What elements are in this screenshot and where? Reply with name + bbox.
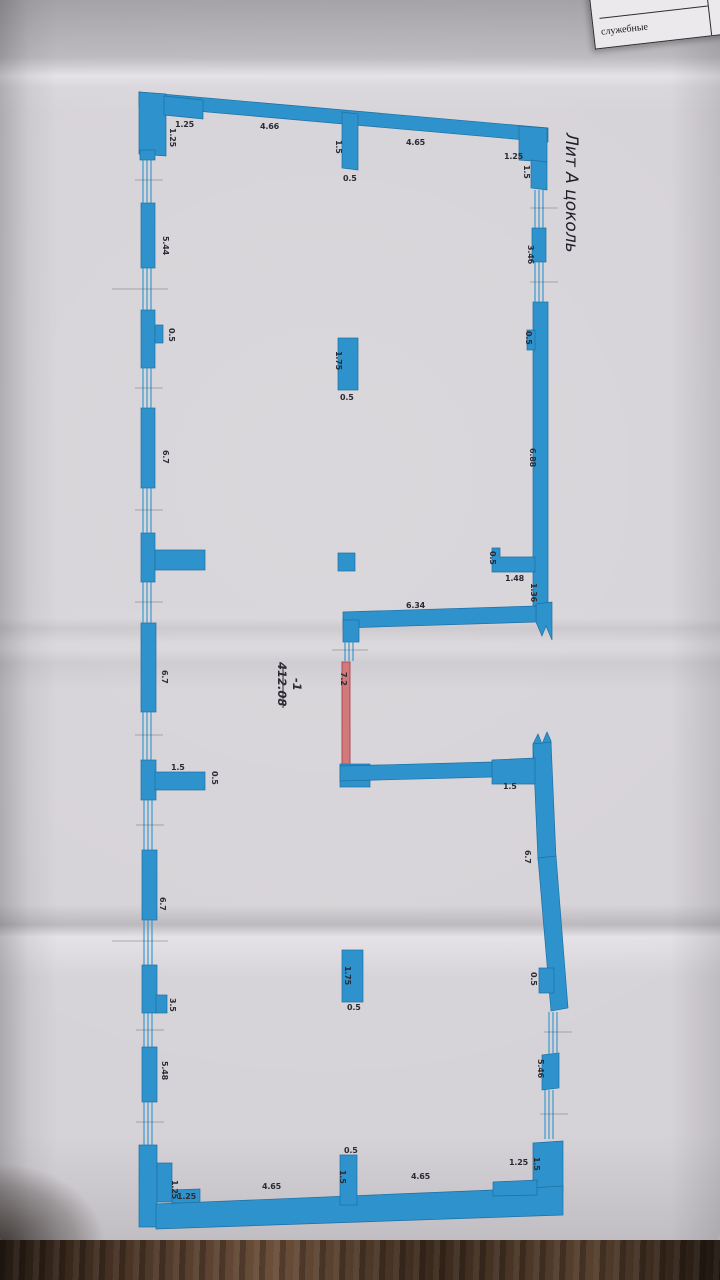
- dim-label: 6.7: [158, 897, 167, 911]
- dim-label: 1.5: [522, 165, 531, 179]
- table-surface: [0, 1240, 720, 1280]
- dim-label: 1.5: [503, 782, 517, 791]
- dim-label: 1.5: [338, 1170, 347, 1184]
- dim-label: 0.5: [210, 771, 219, 785]
- dim-label: 5.46: [536, 1059, 545, 1079]
- dimension-labels: 1.25 4.66 1.5 0.5 4.65 1.25 1.5 1.25 5.4…: [158, 120, 545, 1201]
- pilaster: [155, 325, 163, 343]
- dim-label: 4.65: [406, 138, 426, 147]
- dim-label: 1.25: [504, 152, 524, 161]
- bottom-left-corner-flare: [157, 1163, 172, 1202]
- dim-label: 0.5: [167, 328, 176, 342]
- dim-label: 1.36: [529, 583, 538, 603]
- dim-label: 0.5: [347, 1003, 361, 1012]
- dim-label: 0.5: [340, 393, 354, 402]
- top-right-corner-flare: [519, 126, 547, 162]
- dim-label: 4.66: [260, 122, 280, 131]
- opening-lines: [345, 640, 353, 661]
- dim-label: 1.75: [343, 966, 352, 986]
- dim-label: 6.7: [160, 670, 169, 684]
- dim-label: 1.48: [505, 574, 525, 583]
- dim-label: 1.5: [334, 140, 343, 154]
- dim-label: 5.48: [160, 1061, 169, 1081]
- top-wall-stub: [342, 112, 358, 170]
- dim-label: 1.25: [177, 1192, 197, 1201]
- interior-stub: [155, 550, 205, 570]
- dim-label: 0.5: [343, 174, 357, 183]
- interior-stub: [492, 548, 535, 572]
- interior-walls: [338, 338, 536, 1002]
- plan-title: Лит А цоколь: [561, 132, 581, 253]
- pilaster: [539, 968, 554, 993]
- bottom-wall: [156, 1155, 563, 1229]
- dim-label: 0.5: [524, 331, 533, 345]
- left-wall: [139, 150, 205, 1227]
- dim-label: 0.5: [488, 551, 497, 565]
- dim-label: 0.5: [344, 1146, 358, 1155]
- room-area-label: -1 412.08: [275, 661, 304, 708]
- dim-label: 6.7: [161, 450, 170, 464]
- room-area: 412.08: [275, 661, 289, 706]
- pilaster: [156, 995, 167, 1013]
- dim-label: 4.65: [262, 1182, 282, 1191]
- dim-label: 3.5: [168, 998, 177, 1012]
- interior-stub: [155, 772, 205, 790]
- dim-label: 1.5: [171, 763, 185, 772]
- dim-label: 1.5: [532, 1157, 541, 1171]
- dim-label: 5.44: [161, 236, 170, 256]
- dim-label: 0.5: [529, 972, 538, 986]
- top-left-corner-flare: [139, 92, 166, 156]
- dim-label: 4.65: [411, 1172, 431, 1181]
- dim-label: 3.46: [526, 245, 535, 265]
- dim-label: 1.25: [168, 128, 177, 148]
- free-stub: [338, 553, 355, 571]
- dim-label: 1.25: [509, 1158, 529, 1167]
- dim-label: 1.75: [334, 351, 343, 371]
- dim-label: 6.7: [523, 850, 532, 864]
- room-number: -1: [290, 678, 304, 691]
- wall-break-symbol: [536, 602, 552, 640]
- dim-label: 6.34: [406, 601, 426, 610]
- dim-label: 6.88: [528, 448, 537, 468]
- floor-plan-drawing: 1.25 4.66 1.5 0.5 4.65 1.25 1.5 1.25 5.4…: [0, 0, 720, 1280]
- dim-label: 7.2: [339, 672, 348, 686]
- interior-wall-horizontal: [343, 606, 536, 628]
